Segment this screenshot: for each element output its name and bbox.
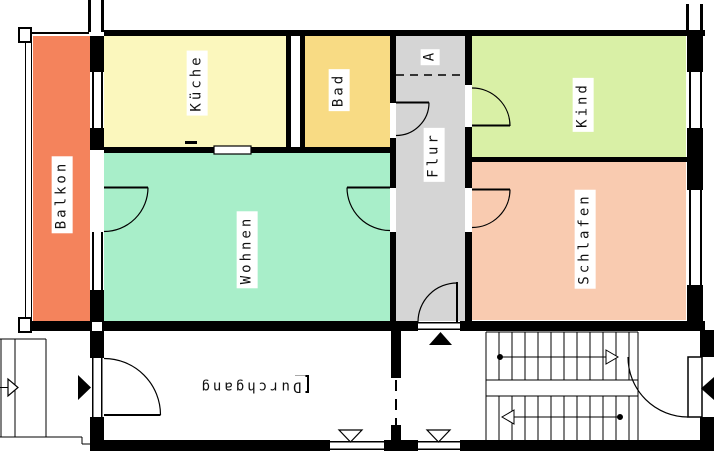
room-label-flur: Flur xyxy=(424,128,445,182)
entrance-arrow-west xyxy=(78,375,91,400)
room-label-balkon: Balkon xyxy=(52,157,73,234)
stair-risers-lower xyxy=(499,396,629,441)
entrance-arrow-flur xyxy=(429,332,452,345)
room-label-kueche: Küche xyxy=(187,50,208,115)
room-label-durchgang: Durchgang xyxy=(195,376,306,397)
stair-direction-arrow-up xyxy=(498,350,619,364)
room-label-bad: Bad xyxy=(329,69,350,111)
kitchen-hatch xyxy=(214,146,251,154)
room-label-schlafen: Schlafen xyxy=(575,189,596,288)
column-bottom-left xyxy=(19,318,31,332)
floorplan-drawing xyxy=(0,0,722,468)
column-top-left xyxy=(19,28,31,42)
floorplan: Balkon Küche Bad A Flur Kind Schlafen Wo… xyxy=(0,0,722,468)
room-label-wohnen: Wohnen xyxy=(237,212,258,289)
opening-marker-south-2 xyxy=(427,430,450,442)
entrance-arrow-east xyxy=(701,377,714,400)
stair-direction-arrow-down xyxy=(502,410,623,424)
room-label-kind: Kind xyxy=(573,78,594,132)
section-marker-a: A xyxy=(421,49,440,65)
staircase xyxy=(486,332,638,441)
door-stairwell-entrance xyxy=(628,357,702,417)
steps-direction-arrow xyxy=(8,379,18,396)
